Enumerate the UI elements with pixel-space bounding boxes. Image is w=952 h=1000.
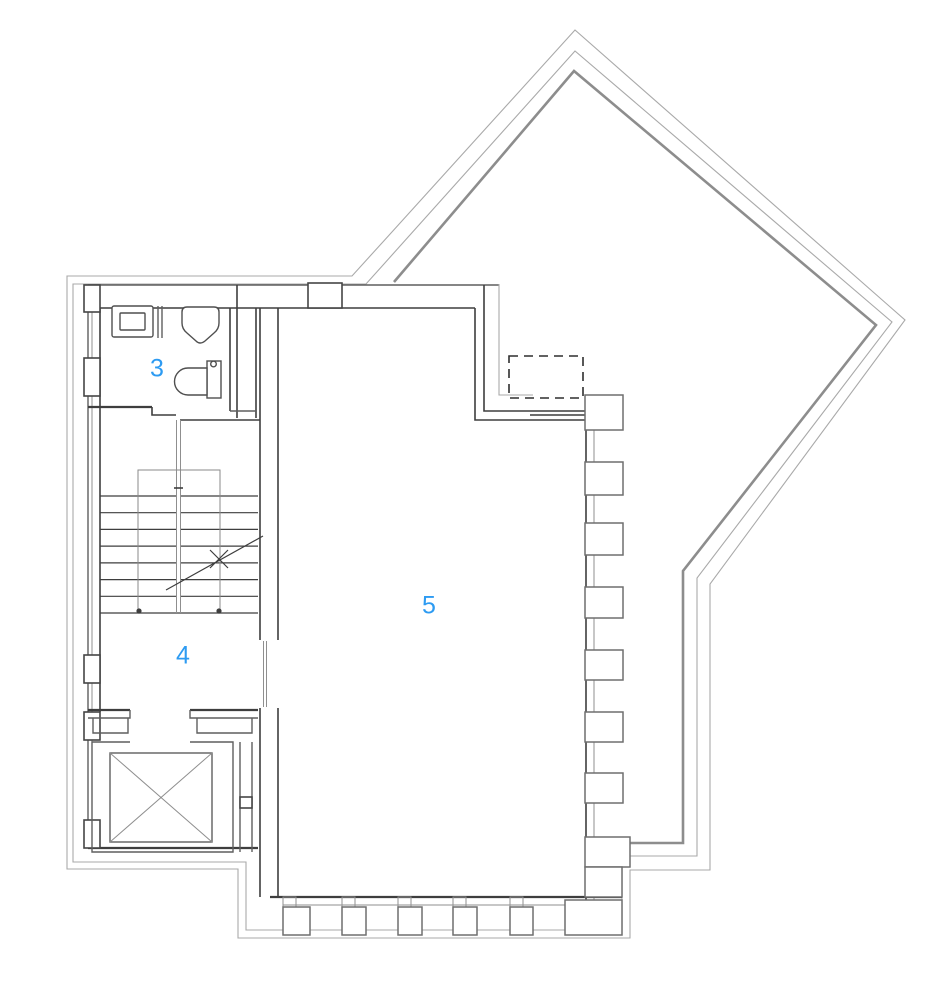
lobby-jamb-right <box>190 710 258 733</box>
stair-railing <box>138 470 220 613</box>
wall-columns-bottom <box>283 897 533 935</box>
toilet-icon <box>175 361 222 398</box>
bathroom-fixtures <box>112 306 221 398</box>
fixture-divider <box>158 306 162 338</box>
elevator-duct-notch <box>240 797 252 808</box>
step-wall-light <box>499 284 533 395</box>
staircase <box>100 420 263 614</box>
step-wall-inner <box>475 308 586 420</box>
terrace-boundary <box>67 30 905 938</box>
floor-plan: 3 4 5 <box>0 0 952 1000</box>
floor-plan-drawing <box>0 0 952 1000</box>
skylight-dashed-outline <box>509 356 583 398</box>
bathroom-bottom-step <box>152 407 176 415</box>
stair-break-mark <box>210 550 228 568</box>
sink-icon <box>112 306 153 337</box>
urinal-icon <box>182 307 219 343</box>
elevator-shaft-cross <box>110 753 212 842</box>
hall-door-leaf <box>264 641 267 707</box>
room-label-4: 4 <box>176 642 190 671</box>
room-label-3: 3 <box>150 355 164 384</box>
room-label-5: 5 <box>422 592 436 621</box>
top-wall-column <box>308 283 342 308</box>
exterior-walls <box>88 284 622 905</box>
elevator <box>92 742 252 852</box>
terrace-boundary-outer <box>67 30 905 938</box>
wall-columns-right <box>565 395 630 935</box>
railing-post-right <box>216 608 221 613</box>
railing-post-left <box>136 608 141 613</box>
terrace-boundary-inner <box>73 51 892 930</box>
